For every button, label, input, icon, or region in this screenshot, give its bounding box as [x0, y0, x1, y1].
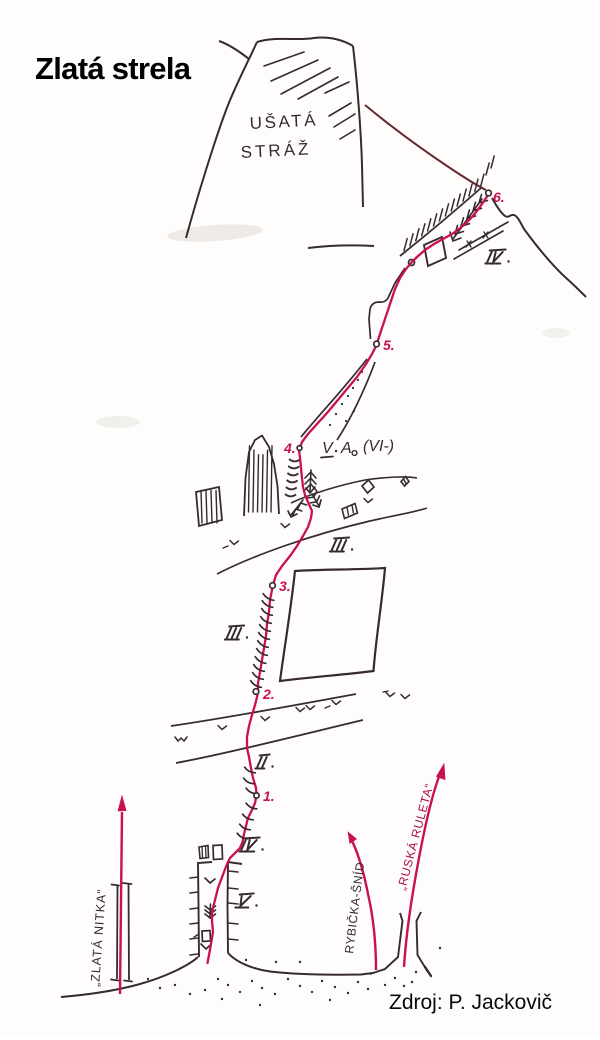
svg-text:3.: 3.: [279, 578, 291, 594]
svg-text:4.: 4.: [283, 440, 296, 456]
svg-text:6.: 6.: [493, 189, 505, 205]
svg-text:(VI-): (VI-): [363, 438, 394, 455]
svg-text:UŠATÁ: UŠATÁ: [249, 110, 318, 133]
svg-text:STRÁŽ: STRÁŽ: [240, 139, 312, 162]
svg-text:2.: 2.: [262, 686, 275, 702]
svg-text:A: A: [340, 440, 352, 457]
svg-text:1.: 1.: [263, 788, 275, 804]
svg-text:V: V: [322, 440, 334, 457]
svg-text:5.: 5.: [383, 337, 395, 353]
svg-text:Zdroj: P. Jackovič: Zdroj: P. Jackovič: [389, 991, 552, 1014]
svg-text:Zlatá strela: Zlatá strela: [35, 51, 192, 86]
